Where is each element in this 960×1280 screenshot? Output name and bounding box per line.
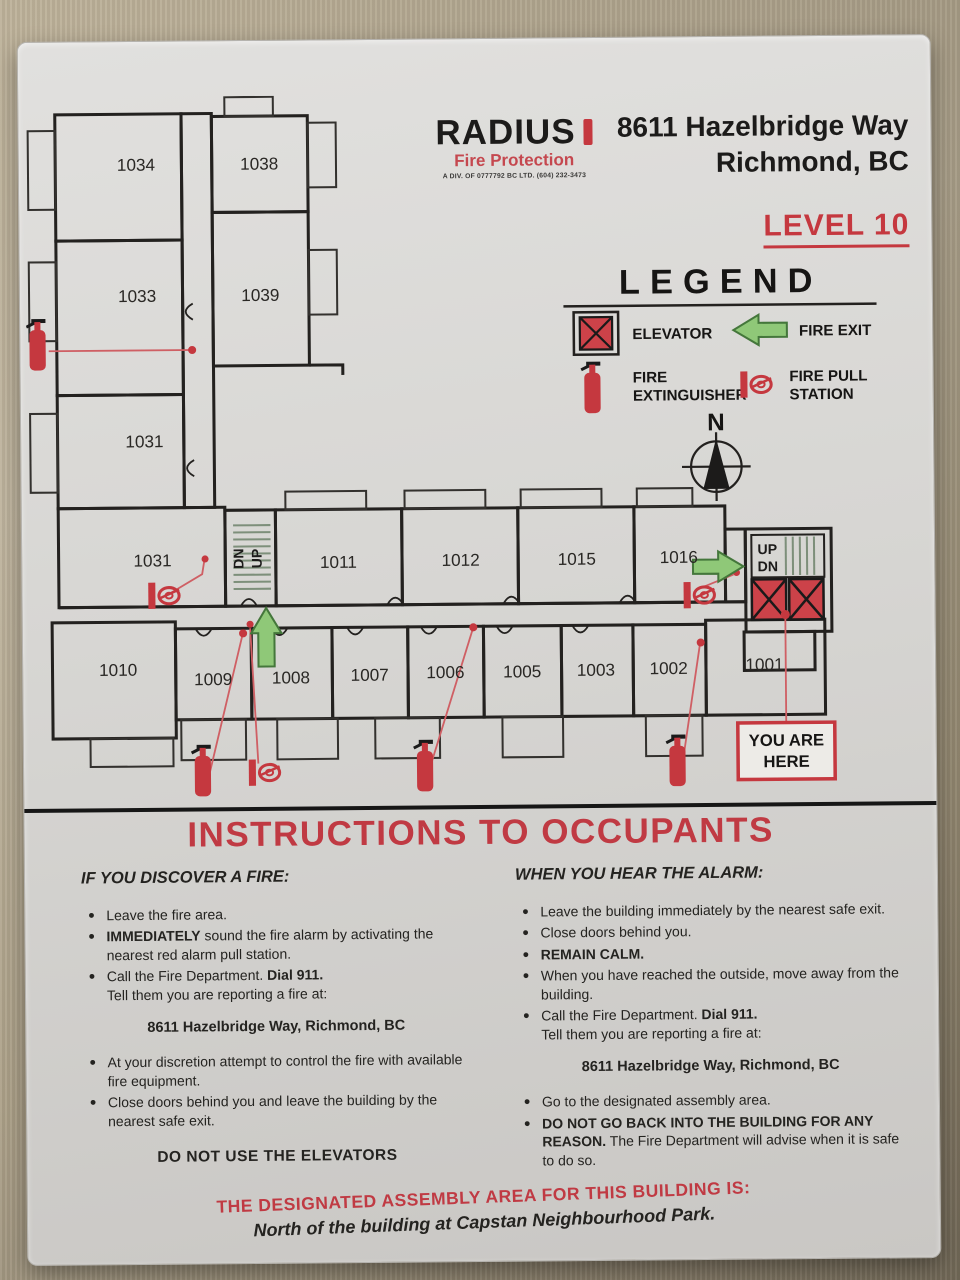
fire-pull-station-icon <box>744 371 771 397</box>
list-item: Call the Fire Department. Dial 911.Tell … <box>516 1003 904 1043</box>
room-label: 1034 <box>117 155 156 175</box>
no-elevators-warning: DO NOT USE THE ELEVATORS <box>83 1145 471 1169</box>
stair-label: DN <box>758 558 779 574</box>
discover-fire-title: IF YOU DISCOVER A FIRE: <box>81 865 469 890</box>
fire-pull-station-icon <box>252 759 279 785</box>
list-item: Close doors behind you. <box>515 921 903 943</box>
stairwell-1: DN UP <box>230 525 271 589</box>
legend: LEGEND ELEVATOR FIRE EXIT FIRE EXTINGUIS… <box>563 262 877 414</box>
list-item: When you have reached the outside, move … <box>516 963 904 1003</box>
instructions-columns: IF YOU DISCOVER A FIRE: Leave the fire a… <box>81 861 906 1176</box>
report-address: 8611 Hazelbridge Way, Richmond, BC <box>82 1016 470 1039</box>
room-labels: 1034 1038 1033 1039 1031 1031 1011 1012 … <box>95 149 784 690</box>
room-label: 1038 <box>240 153 278 173</box>
room-label: 1006 <box>426 662 464 682</box>
fire-exit-arrow-icon <box>693 551 744 582</box>
list-item: IMMEDIATELY sound the fire alarm by acti… <box>81 924 469 964</box>
discover-fire-column: IF YOU DISCOVER A FIRE: Leave the fire a… <box>81 865 472 1176</box>
legend-pull-station-label-1: FIRE PULL <box>789 367 867 385</box>
room-label: 1008 <box>272 667 310 687</box>
legend-title: LEGEND <box>619 262 823 302</box>
fire-exit-arrow-icon <box>733 315 787 346</box>
room-label: 1015 <box>558 549 596 569</box>
floor-plan-svg: DN UP UP DN <box>24 90 914 805</box>
hear-alarm-column: WHEN YOU HEAR THE ALARM: Leave the build… <box>515 861 906 1172</box>
fire-pull-station-icon <box>152 582 179 608</box>
you-are-here-label: HERE <box>763 752 809 771</box>
you-are-here-label: YOU ARE <box>749 730 824 750</box>
fire-pull-station-icon <box>687 582 714 608</box>
room-label: 1002 <box>649 658 687 678</box>
room-label: 1010 <box>99 660 137 680</box>
fire-exit-arrow-icon <box>251 608 282 667</box>
room-label: 1005 <box>503 661 541 681</box>
stair-label: UP <box>757 541 777 557</box>
room-label: 1031 <box>125 431 163 451</box>
room-label: 1039 <box>241 285 279 305</box>
floor-plan: DN UP UP DN <box>24 90 914 805</box>
elevator-icon <box>789 579 824 620</box>
stairwell-2: UP DN <box>751 534 824 619</box>
instructions-heading: INSTRUCTIONS TO OCCUPANTS <box>24 809 936 857</box>
stair-label: DN <box>230 548 246 569</box>
list-item: At your discretion attempt to control th… <box>83 1050 471 1090</box>
list-item: Close doors behind you and leave the bui… <box>83 1090 471 1130</box>
compass-north-label: N <box>707 409 725 436</box>
hear-alarm-title: WHEN YOU HEAR THE ALARM: <box>515 861 903 886</box>
room-label: 1007 <box>351 665 389 685</box>
list-item: Leave the fire area. <box>81 903 469 925</box>
fire-extinguisher-icon <box>581 364 601 414</box>
legend-pull-station-label-2: STATION <box>789 386 853 404</box>
room-label: 1012 <box>441 550 479 570</box>
room-label: 1016 <box>660 547 698 567</box>
room-label: 1001 <box>745 654 783 674</box>
room-label: 1031 <box>133 550 171 570</box>
list-item: Go to the designated assembly area. <box>517 1089 905 1111</box>
room-label: 1003 <box>577 660 615 680</box>
assembly-area-notice: THE DESIGNATED ASSEMBLY AREA FOR THIS BU… <box>27 1170 940 1249</box>
room-label: 1009 <box>194 669 232 689</box>
list-item: Call the Fire Department. Dial 911.Tell … <box>82 964 470 1004</box>
legend-fire-exit-label: FIRE EXIT <box>799 322 872 340</box>
fire-safety-plan-sign: RADIUS Fire Protection A DIV. OF 0777792… <box>17 34 942 1266</box>
report-address: 8611 Hazelbridge Way, Richmond, BC <box>517 1055 905 1078</box>
fire-extinguisher-icon <box>414 742 434 792</box>
legend-extinguisher-label-2: EXTINGUISHER <box>633 387 747 405</box>
legend-extinguisher-label-1: FIRE <box>633 369 668 386</box>
legend-elevator-label: ELEVATOR <box>632 325 712 343</box>
room-label: 1033 <box>118 286 156 306</box>
stair-label: UP <box>249 549 265 569</box>
room-label: 1011 <box>320 552 357 572</box>
you-are-here-box: YOU ARE HERE <box>738 722 835 779</box>
door-arcs <box>186 300 636 636</box>
list-item: REMAIN CALM. <box>516 942 904 964</box>
fire-extinguisher-icon <box>666 737 686 787</box>
list-item: Leave the building immediately by the ne… <box>515 899 903 921</box>
fire-extinguisher-icon <box>192 747 212 797</box>
list-item: DO NOT GO BACK INTO THE BUILDING FOR ANY… <box>517 1111 905 1170</box>
